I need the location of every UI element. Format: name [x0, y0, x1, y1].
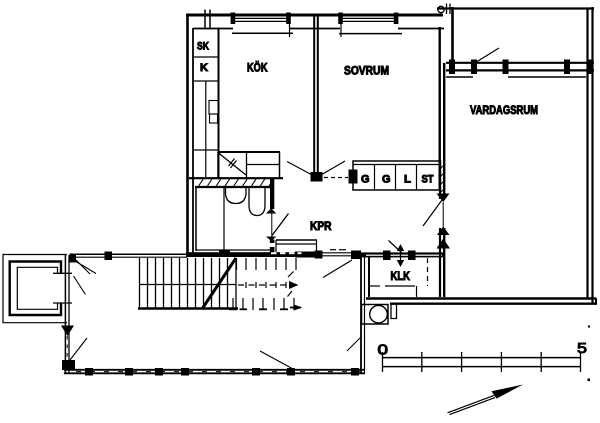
svg-text:L: L: [404, 174, 411, 186]
svg-text:KPR: KPR: [310, 221, 332, 233]
svg-text:SOVRUM: SOVRUM: [344, 66, 389, 78]
svg-text:5: 5: [577, 340, 587, 357]
svg-text:0: 0: [378, 342, 389, 359]
svg-text:G: G: [382, 174, 391, 186]
svg-text:KÖK: KÖK: [247, 62, 268, 75]
svg-text:G: G: [361, 174, 370, 186]
svg-text:VARDAGSRUM: VARDAGSRUM: [470, 105, 538, 117]
svg-text:K: K: [200, 62, 208, 74]
svg-text:KLK: KLK: [391, 271, 411, 283]
svg-text:SK: SK: [197, 41, 209, 53]
svg-text:ST: ST: [422, 174, 434, 186]
